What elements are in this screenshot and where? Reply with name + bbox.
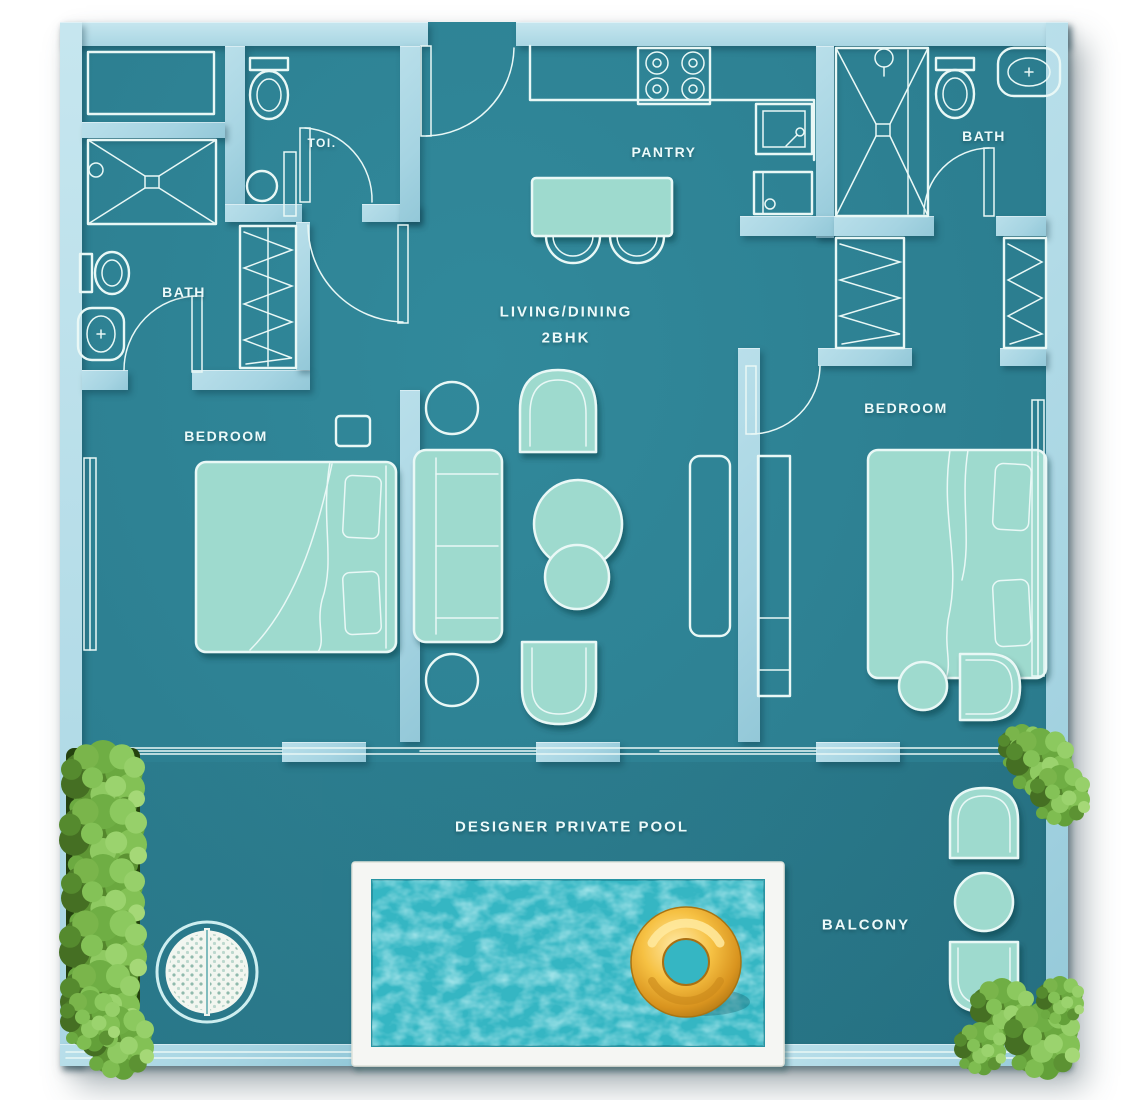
floorplan-canvas: TOI. BATH PANTRY BATH BEDROOM LIVING/DIN… bbox=[0, 0, 1131, 1100]
label-bedroom-right: BEDROOM bbox=[864, 400, 948, 416]
label-living-dining: LIVING/DINING bbox=[500, 304, 633, 321]
wall-wardrobe1-side bbox=[296, 222, 310, 370]
label-balcony: BALCONY bbox=[822, 917, 910, 934]
label-unit-type: 2BHK bbox=[542, 330, 591, 347]
wall-bedroom1-living bbox=[400, 390, 420, 742]
wall-window-block1 bbox=[282, 742, 366, 762]
label-pantry: PANTRY bbox=[632, 144, 697, 160]
label-toi: TOI. bbox=[307, 136, 336, 150]
wall-under-toi-a bbox=[225, 204, 302, 222]
wall-bottom-left bbox=[60, 1044, 354, 1066]
wall-dressing-bottom-a bbox=[818, 348, 912, 366]
wall-bath1-toi bbox=[225, 46, 245, 204]
label-pool: DESIGNER PRIVATE POOL bbox=[455, 819, 689, 836]
wall-right bbox=[1046, 22, 1068, 1066]
wall-top-left bbox=[60, 22, 428, 46]
wall-living-bedroom2 bbox=[738, 348, 760, 742]
label-bedroom-left: BEDROOM bbox=[184, 428, 268, 444]
label-bath-left: BATH bbox=[162, 284, 206, 300]
wall-bath2-bottom-b bbox=[996, 216, 1046, 236]
wall-top-right bbox=[516, 22, 1068, 46]
wall-bath1-bedroom1-a bbox=[82, 370, 128, 390]
wall-bath1-bedroom1-b bbox=[192, 370, 310, 390]
wall-bottom-right bbox=[783, 1044, 1068, 1066]
wall-bath1-shelf bbox=[82, 122, 225, 138]
wall-utility-bottom bbox=[740, 216, 834, 236]
wall-dressing-bottom-b bbox=[1000, 348, 1046, 366]
wall-left bbox=[60, 22, 82, 1066]
wall-bath2-bottom-a bbox=[834, 216, 934, 236]
wall-window-block2 bbox=[536, 742, 620, 762]
balcony-floor-shade bbox=[60, 762, 1068, 1044]
wall-toi-entry bbox=[400, 46, 420, 222]
label-bath-right: BATH bbox=[962, 128, 1006, 144]
wall-pantry-bath2 bbox=[816, 46, 834, 238]
wall-window-block3 bbox=[816, 742, 900, 762]
